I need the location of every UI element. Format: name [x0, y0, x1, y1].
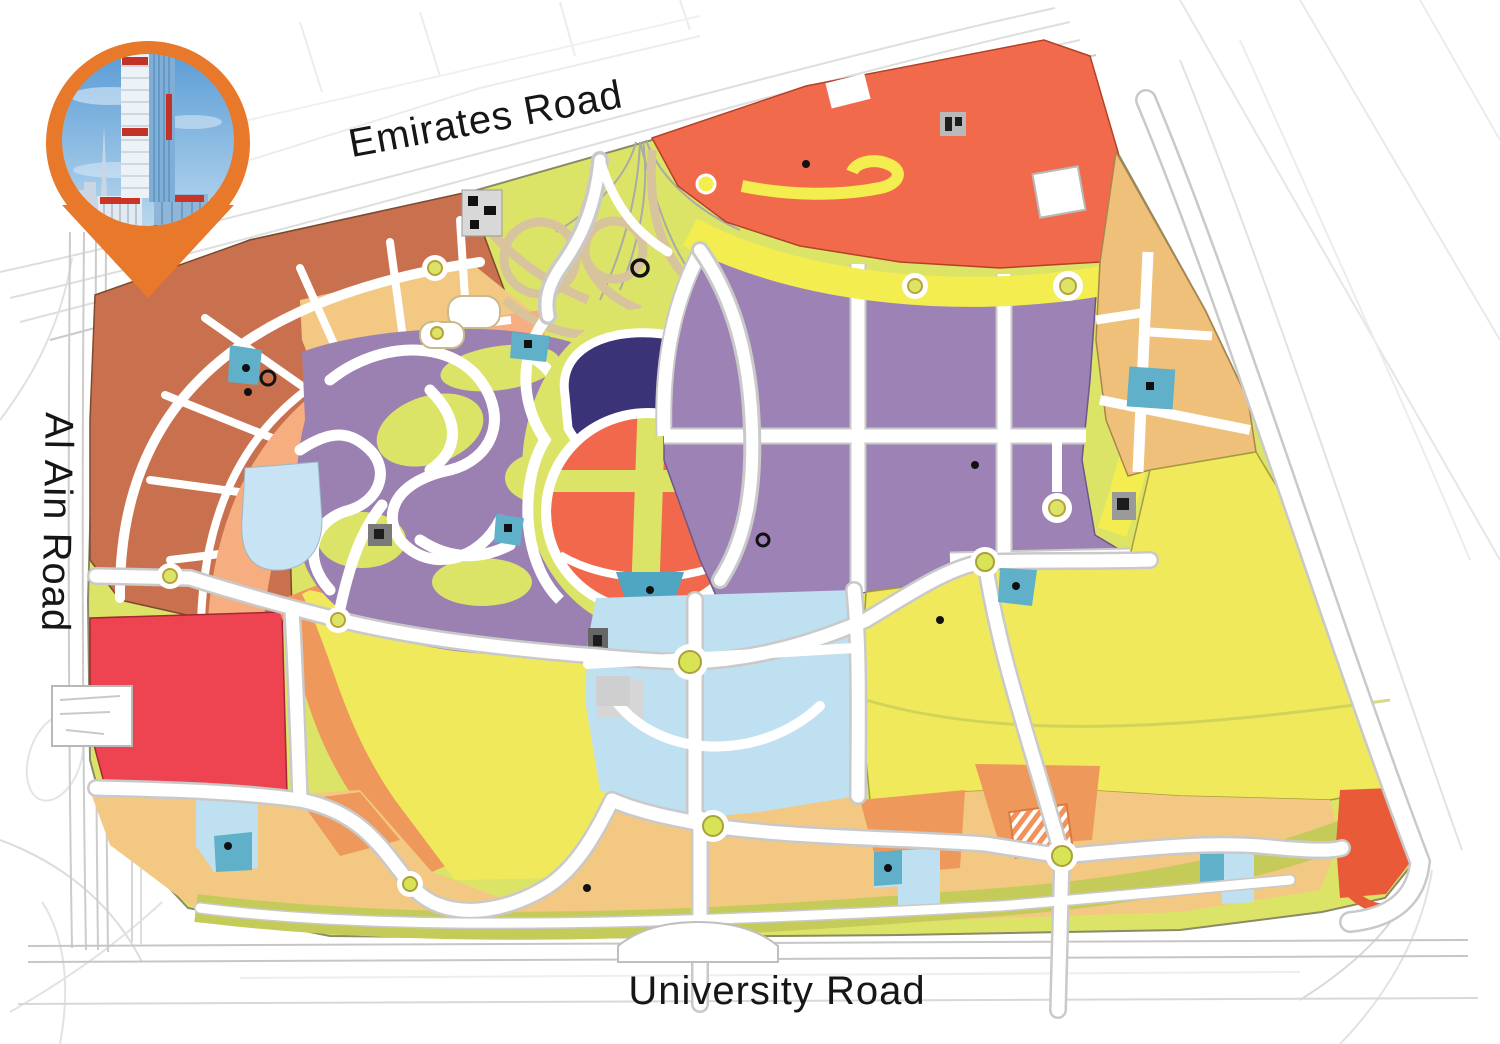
white-utility-plot [52, 686, 132, 746]
white-plot-ne [1033, 166, 1086, 217]
white-plot-se [596, 676, 630, 706]
site-area [52, 40, 1420, 1010]
mosque-icon [1112, 492, 1136, 520]
university-road-label: University Road [628, 969, 925, 1013]
master-plan-map: Emirates Road Al Ain Road University Roa… [0, 0, 1500, 1044]
mosque-icon [940, 112, 966, 136]
pond [242, 462, 322, 570]
al-ain-road-label: Al Ain Road [33, 412, 81, 633]
master-plan-screenshot: Emirates Road Al Ain Road University Roa… [0, 0, 1500, 1044]
mosque-icon [368, 524, 392, 546]
